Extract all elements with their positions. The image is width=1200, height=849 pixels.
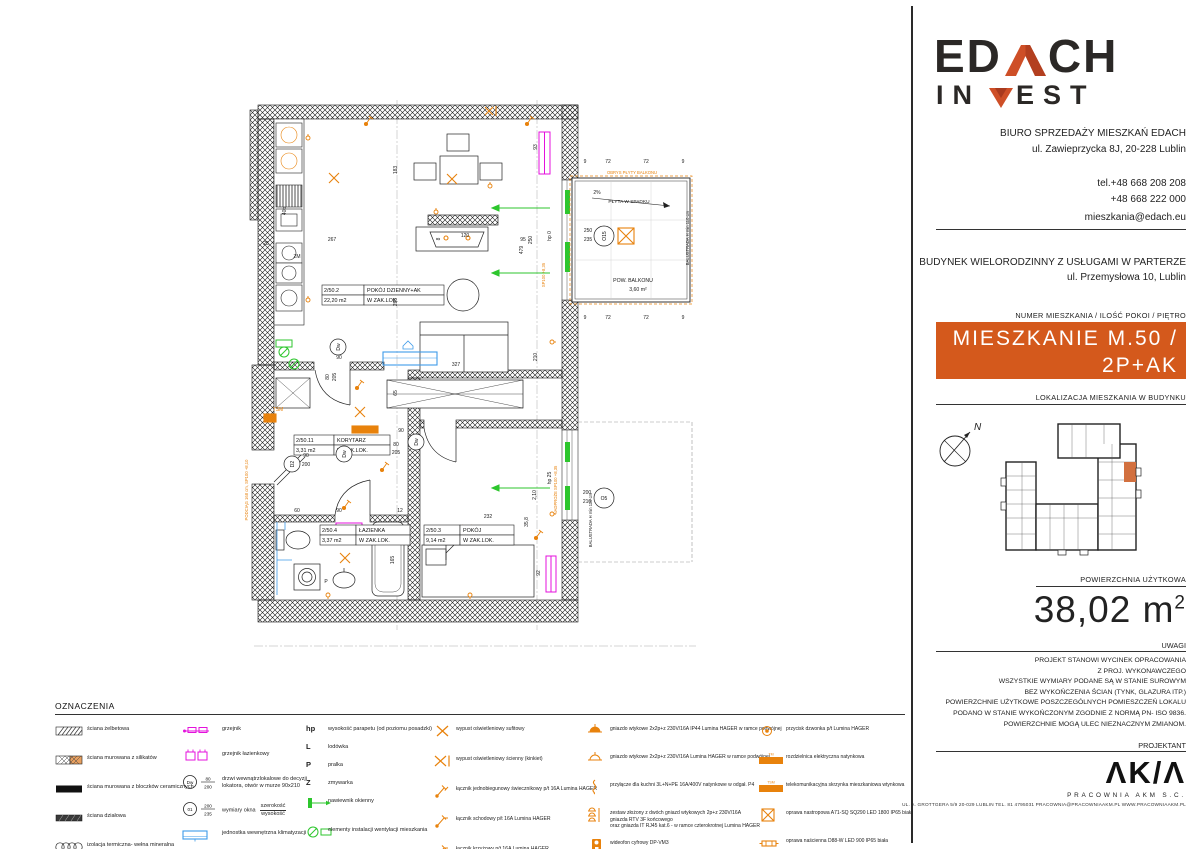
letter-icon: L (306, 741, 328, 751)
legend-item: przycisk dzwonka p/t Lumina HAGER (758, 723, 900, 744)
note-line: WSZYSTKIE WYMIARY PODANE SĄ W STANIE SUR… (945, 677, 1186, 688)
legend-item-label: wypust oświetleniowy ścienny (kinkiet) (456, 753, 543, 763)
circle-frac-icon: 01 200 235 (182, 800, 222, 823)
svg-text:TSM: TSM (767, 781, 775, 785)
letter-icon: P (306, 759, 328, 769)
hatch-silicate-icon (55, 752, 87, 773)
legend-rule (55, 714, 905, 715)
legend-item: nawiewnik okienny (306, 795, 432, 816)
dim-label: 235 (584, 237, 593, 243)
logo-text-in: IN (936, 82, 981, 109)
note-line: POWIERZCHNIE MOGĄ ULEC NIEZNACZNYM ZMIAN… (945, 720, 1186, 731)
legend-column: przycisk dzwonka p/t Lumina HAGER TM roz… (758, 723, 900, 849)
dim-label: 2% (593, 190, 601, 196)
room-table: 2/50.3POKÓJ9,14 m2W ZAK.LOK. (424, 525, 514, 545)
legend-item: grzejnik (182, 723, 306, 744)
area-caption: POWIERZCHNIA UŻYTKOWA (1080, 575, 1186, 584)
stove-icon (276, 185, 302, 207)
logo-text-ch: CH (1048, 34, 1118, 78)
sw-cross-icon (432, 843, 456, 849)
vent-install-icon (306, 824, 328, 845)
note-line: BEZ WYKOŃCZENIA ŚCIAN (TYNK, GLAZURA ITP… (945, 688, 1186, 699)
svg-text:200: 200 (204, 785, 212, 790)
dim-label: 65 (393, 390, 399, 396)
dim-label: 8 (436, 237, 442, 240)
dim-label: 92 (536, 570, 542, 576)
room-table: 2/50.4ŁAZIENKA3,37 m2W ZAK.LOK. (320, 525, 410, 545)
legend-item-label: lodówka (328, 741, 348, 751)
dim-label: 479 (519, 246, 525, 255)
legend-item-label: ściana żelbetowa (87, 723, 129, 733)
radiator-icon (182, 723, 222, 744)
sw-stair-icon (432, 813, 456, 834)
location-caption: LOKALIZACJA MIESZKANIA W BUDYNKU (1036, 393, 1186, 402)
dim-label: 60 (294, 508, 300, 514)
legend-item: oprawa naścienna D88-W LED 900 IP65 biał… (758, 835, 900, 849)
sales-office: BIURO SPRZEDAŻY MIESZKAŃ EDACH ul. Zawie… (1000, 126, 1186, 158)
dim-label: 183 (393, 166, 399, 175)
box-tag-icon: TSM (758, 779, 786, 800)
svg-text:80: 80 (205, 777, 211, 782)
legend-item: łącznik krzyżowy p/t 16A Lumina HAGER (432, 843, 586, 849)
legend-item-label: gniazdo wtykowe 2x2p+z 230V/16A Lumina H… (610, 751, 770, 761)
legend-item-label: łącznik schodowy p/t 16A Lumina HAGER (456, 813, 551, 823)
invest-v-icon (988, 87, 1014, 109)
x-mark-icon (432, 723, 456, 744)
box-tag-icon: TM (758, 751, 786, 772)
vent-window-icon (306, 795, 328, 816)
roof-icon (1003, 42, 1047, 78)
dim-label: 250 (584, 228, 593, 234)
distribution-board-icon (352, 426, 378, 433)
legend-item-label: gniazdo wtykowe 2x2p+z 230V/16A IP44 Lum… (610, 723, 782, 733)
dim-label: TSM (273, 407, 284, 413)
legend-column: grzejnikgrzejnik łazienkowy Dw 80 200drz… (182, 723, 306, 849)
building-info: BUDYNEK WIELORODZINNY Z USŁUGAMI W PARTE… (919, 255, 1186, 285)
hatch-diag-icon (55, 723, 87, 744)
dashed-outline (578, 422, 692, 562)
email: mieszkania@edach.eu (1085, 212, 1186, 223)
legend-item: gniazdo wtykowe 2x2p+z 230V/16A Lumina H… (586, 751, 758, 772)
dim-label: 267 (328, 237, 337, 243)
mark-circle: O15 (594, 226, 614, 246)
partition-icon (55, 810, 87, 831)
svg-text:3,37 m2: 3,37 m2 (322, 538, 341, 544)
legend-item: TM rozdzielnica elektryczna natynkowa (758, 751, 900, 772)
legend-item-label: izolacja termiczna- wełna mineralna (87, 839, 174, 849)
dim-label: 288 (393, 298, 399, 307)
legend-item: grzejnik łazienkowy (182, 748, 306, 769)
legend-item: Dw 80 200drzwi wewnątrzlokalowe do decyz… (182, 773, 306, 796)
svg-text:Dw: Dw (336, 343, 342, 351)
dim-label: OBRYS PŁYTY BALKONU (607, 170, 657, 175)
dim-label: 90 (336, 508, 342, 514)
letter-icon: Z (306, 777, 328, 787)
legend-title: OZNACZENIA (55, 701, 905, 711)
svg-text:9,14 m2: 9,14 m2 (426, 538, 445, 544)
svg-text:W ZAK.LOK.: W ZAK.LOK. (463, 538, 494, 544)
legend-item-label: łącznik jednobiegunowy świecznikowy p/t … (456, 783, 597, 793)
legend-item-label: pralka (328, 759, 343, 769)
note-line: POWIERZCHNIE UŻYTKOWE POSZCZEGÓLNYCH POM… (945, 698, 1186, 709)
dim-label: P (324, 579, 328, 585)
apartment-caption: NUMER MIESZKANIA / ILOŚĆ POKOI / PIĘTRO (1015, 311, 1186, 320)
dim-label: 250 (528, 236, 534, 245)
dim-label: 205 (392, 450, 401, 456)
sock-set-icon (586, 807, 610, 828)
akm-logo: ΛK/Λ (1106, 755, 1186, 791)
legend-item-label: telekomunikacyjna skrzynka mieszkaniowa … (786, 779, 904, 789)
dim-label: 2,10 (532, 490, 538, 500)
dim-label: 210 (533, 353, 539, 362)
dim-label: 120 (461, 233, 470, 239)
legend-item-label: zmywarka (328, 777, 353, 787)
legend-column: hpwysokość parapetu (od poziomu posadzki… (306, 723, 432, 849)
legend-item-label: ściana działowa (87, 810, 126, 820)
notes-caption: UWAGI (1162, 641, 1186, 650)
dim-label: ZM (293, 254, 300, 260)
legend-item-label: wysokość parapetu (od poziomu posadzki) (328, 723, 432, 733)
dim-label: 72 (643, 315, 649, 321)
note-line: PROJEKT STANOWI WYCINEK OPRACOWANIA (945, 656, 1186, 667)
dim-label: 90 (336, 355, 342, 361)
legend-item-label: elementy instalacji wentylacji mieszkani… (328, 824, 427, 834)
dim-label: 3,60 m² (629, 287, 647, 293)
svg-text:KORYTARZ: KORYTARZ (337, 438, 367, 444)
dim-label: 9 (682, 159, 685, 165)
svg-text:O5: O5 (601, 496, 608, 502)
legend-item-label: drzwi wewnątrzlokalowe do decyzjilokator… (222, 773, 307, 789)
svg-text:POKÓJ DZIENNY+AK: POKÓJ DZIENNY+AK (367, 287, 421, 294)
rule (936, 404, 1186, 405)
legend-column: wypust oświetleniowy sufitowywypust oświ… (432, 723, 586, 849)
wardrobe (276, 378, 523, 408)
floor-plan-drawing: 2/50.2POKÓJ DZIENNY+AK22,20 m2W ZAK.LOK.… (240, 90, 700, 660)
svg-text:22,20 m2: 22,20 m2 (324, 298, 346, 304)
legend-item: jednostka wewnętrzna klimatyzacji (182, 827, 306, 848)
svg-text:ŁAZIENKA: ŁAZIENKA (359, 528, 385, 534)
legend-item: izolacja termiczna- wełna mineralna (55, 839, 182, 849)
apartment-number: MIESZKANIE M.50 / 2P+AK (936, 325, 1178, 379)
svg-text:01: 01 (187, 807, 193, 812)
legend-item: łącznik schodowy p/t 16A Lumina HAGER (432, 813, 586, 834)
sock-ip44-icon (586, 723, 610, 744)
dim-label: 80 (325, 374, 331, 380)
highlighted-unit (1124, 462, 1136, 482)
svg-text:235: 235 (204, 812, 212, 817)
compass-icon: N (930, 418, 984, 476)
apartment-banner: MIESZKANIE M.50 / 2P+AK PIĘTRO 2 (936, 322, 1186, 379)
radiator-bath-icon (182, 748, 222, 769)
svg-text:Dw: Dw (342, 450, 348, 458)
legend-item-label: nawiewnik okienny (328, 795, 374, 805)
notes-list: PROJEKT STANOWI WYCINEK OPRACOWANIAZ PRO… (945, 656, 1186, 730)
info-panel: ED CH IN EST BIURO SPRZEDAŻY MIESZKAŃ ED… (912, 0, 1200, 849)
dim-label: 35,8 (524, 517, 530, 527)
svg-text:2/50.11: 2/50.11 (296, 438, 314, 444)
mark-circle: Dw (330, 339, 346, 355)
designer-name: PRACOWNIA AKM S.C. (1067, 792, 1186, 799)
wool-icon (55, 839, 87, 849)
dining-set (414, 134, 502, 251)
dim-label: 80 (393, 442, 399, 448)
svg-text:2/50.2: 2/50.2 (324, 288, 339, 294)
legend-item: Ppralka (306, 759, 432, 769)
legend: OZNACZENIA ściana żelbetowaściana murowa… (55, 701, 905, 849)
videophone-icon (586, 837, 610, 849)
ac-unit-icon (182, 827, 222, 848)
telecom-box-icon (264, 414, 276, 422)
mark-circle: O5 (594, 488, 614, 508)
dim-label: 9 (584, 315, 587, 321)
svg-text:O15: O15 (602, 231, 608, 241)
edach-invest: IN EST (936, 82, 1096, 109)
svg-text:Dw: Dw (187, 780, 194, 785)
dim-label: 72 (643, 159, 649, 165)
area-value: 38,02 m2 (1034, 589, 1186, 631)
legend-item-label: przycisk dzwonka p/t Lumina HAGER (786, 723, 869, 733)
room-table: 2/50.2POKÓJ DZIENNY+AK22,20 m2W ZAK.LOK. (322, 285, 444, 305)
legend-item: Llodówka (306, 741, 432, 751)
designer-caption: PROJEKTANT (1138, 741, 1186, 750)
rule (936, 651, 1186, 652)
building-minimap (1000, 418, 1152, 564)
legend-item: wypust oświetleniowy sufitowy (432, 723, 586, 744)
legend-item: ściana murowana z silikatów (55, 752, 182, 773)
mark-circle: Dw (336, 446, 352, 462)
bell-icon (758, 723, 786, 744)
dim-label: 72 (605, 159, 611, 165)
dim-label: 200 (302, 462, 311, 468)
lamp-wall-icon (758, 835, 786, 849)
legend-item-label: ściana murowana z bloczków ceramicznych (87, 781, 194, 791)
legend-item: ściana murowana z bloczków ceramicznych (55, 781, 182, 802)
legend-item-label: grzejnik (222, 723, 241, 733)
legend-item: oprawa nastropowa A71-SQ SQ290 LED 1800 … (758, 807, 900, 828)
rule (1036, 586, 1186, 587)
legend-item-label: przyłącze dla kuchni 3L+N+PE 16A/400V na… (610, 779, 754, 789)
dim-label: NADPROŻE SP100 +8,35 (553, 465, 558, 514)
legend-item-label: wymiary oknaszerokośćwysokość (222, 800, 286, 817)
svg-text:Dw: Dw (414, 438, 420, 446)
legend-item-label: rozdzielnica elektryczna natynkowa (786, 751, 864, 761)
legend-item-label: jednostka wewnętrzna klimatyzacji (222, 827, 306, 837)
dim-label: 9 (682, 315, 685, 321)
legend-column: ściana żelbetowaściana murowana z silika… (55, 723, 182, 849)
legend-item: łącznik jednobiegunowy świecznikowy p/t … (432, 783, 586, 804)
rule (936, 229, 1186, 230)
dim-label: 327 (452, 362, 461, 368)
floorplan-sheet: 2/50.2POKÓJ DZIENNY+AK22,20 m2W ZAK.LOK.… (0, 0, 1200, 849)
note-line: PODANO W STANIE WYKOŃCZONYM ZGODNIE Z NO… (945, 709, 1186, 720)
phone-numbers: tel.+48 668 208 208 +48 668 222 000 (1097, 176, 1186, 208)
legend-item: wypust oświetleniowy ścienny (kinkiet) (432, 753, 586, 774)
legend-item-label: wideofon cyfrowy DP-VM3 (610, 837, 669, 847)
legend-item-label: łącznik krzyżowy p/t 16A Lumina HAGER (456, 843, 549, 849)
x-wall-icon (432, 753, 456, 774)
dim-label: 90 (303, 453, 309, 459)
svg-text:2/50.3: 2/50.3 (426, 528, 441, 534)
legend-item-label: wypust oświetleniowy sufitowy (456, 723, 525, 733)
mark-circle: D2 (284, 456, 300, 472)
dim-label: 90 (398, 428, 404, 434)
legend-item: ściana działowa (55, 810, 182, 831)
dim-label: PODCIĄG 168 cm, SP100 +8,10 (244, 459, 249, 521)
letter-icon: hp (306, 723, 328, 733)
compass-n-label: N (974, 422, 982, 433)
logo-text-ed: ED (934, 34, 1002, 78)
legend-item-label: zestaw złożony z dwóch gniazd wtykowych … (610, 807, 760, 830)
kitchen (274, 119, 304, 325)
dim-label: PŁYTA W SPADKU (608, 199, 650, 205)
dim-label: 9 (584, 159, 587, 165)
mark-circle: Dw (408, 434, 424, 450)
svg-text:POKÓJ: POKÓJ (463, 527, 482, 534)
dim-label: 40b (282, 207, 288, 216)
sock-double-icon (586, 751, 610, 772)
svg-text:2/50.4: 2/50.4 (322, 528, 337, 534)
dim-label: BALUSTRADA H min 110 cm (685, 210, 690, 265)
lamp-ceiling-icon (758, 807, 786, 828)
logo-text-est: EST (1016, 82, 1096, 109)
legend-item: ściana żelbetowa (55, 723, 182, 744)
solid-black-icon (55, 781, 87, 802)
dim-label: POW. BALKONU (613, 278, 653, 284)
svg-text:D2: D2 (290, 461, 296, 468)
dim-label: BALUSTRADA H min 110 cm (588, 492, 593, 547)
dim-label: 232 (484, 514, 493, 520)
circle-frac-icon: Dw 80 200 (182, 773, 222, 796)
dim-label: 93 (533, 144, 539, 150)
legend-item: gniazdo wtykowe 2x2p+z 230V/16A IP44 Lum… (586, 723, 758, 744)
note-line: Z PROJ. WYKONAWCZEGO (945, 667, 1186, 678)
dim-label: 72 (605, 315, 611, 321)
dim-label: SP100 +8,35 (541, 262, 546, 287)
legend-item: zestaw złożony z dwóch gniazd wtykowych … (586, 807, 758, 830)
dim-label: hp 0 (547, 231, 553, 241)
legend-item: Zzmywarka (306, 777, 432, 787)
dim-label: 25 (263, 241, 269, 247)
designer-address: UL. A. GROTTGERA 5/9 20-029 LUBLIN TEL. … (902, 802, 1186, 807)
legend-item-label: oprawa naścienna D88-W LED 900 IP65 biał… (786, 835, 888, 845)
legend-column: gniazdo wtykowe 2x2p+z 230V/16A IP44 Lum… (586, 723, 758, 849)
dim-label: 12 (397, 508, 403, 514)
legend-item-label: oprawa nastropowa A71-SQ SQ290 LED 1800 … (786, 807, 913, 817)
dim-label: 165 (390, 556, 396, 565)
legend-item: 01 200 235wymiary oknaszerokośćwysokość (182, 800, 306, 823)
legend-item-label: ściana murowana z silikatów (87, 752, 157, 762)
kitchen-conn-icon (586, 779, 610, 800)
svg-text:200: 200 (204, 804, 212, 809)
dim-label: 205 (332, 373, 338, 382)
legend-item: hpwysokość parapetu (od poziomu posadzki… (306, 723, 432, 733)
legend-item: TSM telekomunikacyjna skrzynka mieszkani… (758, 779, 900, 800)
legend-item: wideofon cyfrowy DP-VM3 (586, 837, 758, 849)
legend-item: elementy instalacji wentylacji mieszkani… (306, 824, 432, 845)
sw-chand-icon (432, 783, 456, 804)
legend-item-label: grzejnik łazienkowy (222, 748, 269, 758)
svg-text:TM: TM (768, 753, 773, 757)
bedroom-furniture (422, 545, 534, 597)
rule (936, 751, 1186, 752)
svg-text:W ZAK.LOK.: W ZAK.LOK. (359, 538, 390, 544)
edach-logo: ED CH (934, 34, 1118, 78)
dim-label: 95 (520, 237, 526, 243)
legend-item: przyłącze dla kuchni 3L+N+PE 16A/400V na… (586, 779, 758, 800)
